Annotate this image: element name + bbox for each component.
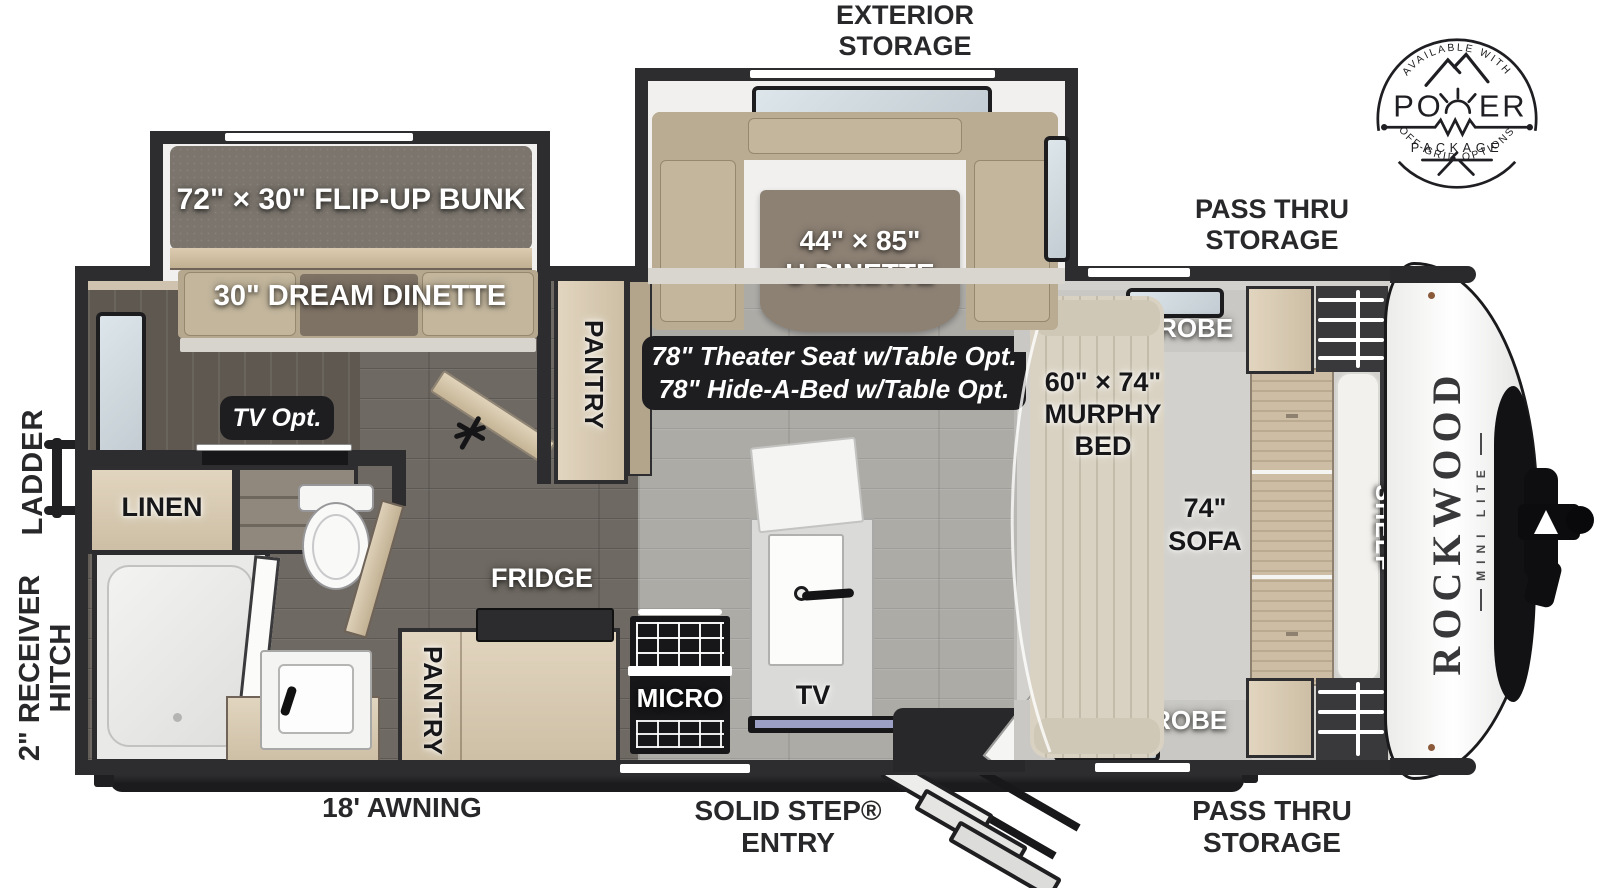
sink-icon	[260, 650, 372, 750]
fridge	[476, 608, 614, 642]
cap-rivet-bottom	[1428, 744, 1435, 751]
label-micro: MICRO	[620, 684, 740, 713]
tv-rear-icon	[202, 450, 348, 465]
wall-left	[75, 266, 88, 775]
label-fridge: FRIDGE	[462, 563, 622, 593]
brand-name: ROCKWOOD	[1423, 368, 1470, 675]
tv-rear-screen	[196, 444, 352, 451]
label-exterior-storage: EXTERIOR STORAGE	[805, 0, 1005, 62]
label-pantry-upper: PANTRY	[578, 280, 608, 470]
bunk-slide-window	[225, 133, 413, 141]
wardrobe-cabinet-top	[1246, 286, 1314, 374]
cap-rivet-top	[1428, 292, 1435, 299]
u-slide-side-window	[1044, 136, 1070, 262]
wall-pantry-left	[537, 278, 551, 484]
cap-trim-bottom	[1390, 758, 1476, 775]
label-pass-thru-storage-top: PASS THRU STORAGE	[1172, 194, 1372, 256]
mountains-icon	[1426, 54, 1488, 85]
floorplan-canvas: EXTERIOR STORAGE PASS THRU STORAGE 18' A…	[0, 0, 1600, 888]
label-sofa: 74" SOFA	[1135, 492, 1275, 558]
u-slide-carpet	[648, 268, 1065, 284]
svg-text:PO: PO	[1393, 88, 1443, 123]
entry-landing-over	[893, 760, 1025, 772]
label-awning: 18' AWNING	[292, 792, 512, 823]
entry-steps-icon	[862, 772, 1082, 888]
shelf-rails-top	[1316, 286, 1388, 372]
label-pass-thru-storage-bottom: PASS THRU STORAGE	[1172, 795, 1372, 859]
cap-trim-top	[1390, 266, 1476, 283]
svg-text:AVAILABLE WITH: AVAILABLE WITH	[1401, 43, 1514, 78]
power-package-badge: AVAILABLE WITH OFF-GRID OPTIONS PO ER PA…	[1366, 18, 1548, 200]
label-tv: TV	[770, 680, 856, 710]
entry-door-leaf	[750, 437, 864, 534]
hitch-icon	[1516, 460, 1600, 610]
label-solid-step-entry: SOLID STEP® ENTRY	[688, 795, 888, 859]
murphy-swing-arc	[990, 290, 1080, 760]
label-receiver-hitch: 2" RECEIVER HITCH	[15, 548, 77, 788]
shelf-rails-bottom	[1316, 678, 1388, 760]
window-strip-bottom-left	[620, 764, 750, 773]
bath-wall-side	[392, 450, 406, 506]
label-dream-dinette: 30" DREAM DINETTE	[188, 280, 532, 312]
tv-opt-label: TV Opt.	[220, 396, 334, 440]
sun-icon	[1441, 89, 1476, 113]
label-flip-up-bunk: 72" × 30" FLIP-UP BUNK	[172, 183, 530, 217]
theater-option-label: 78" Theater Seat w/Table Opt. 78" Hide-A…	[642, 336, 1026, 410]
brand-sub: MINI LITE	[1474, 433, 1488, 611]
rear-window-icon	[96, 312, 146, 458]
svg-text:ER: ER	[1479, 88, 1527, 123]
dinette-carpet	[180, 338, 536, 352]
tv-screen-icon	[748, 716, 900, 733]
bunk-ledge	[170, 248, 532, 270]
label-linen: LINEN	[88, 492, 236, 522]
wardrobe-cabinet-bottom	[1246, 678, 1314, 758]
window-strip-top	[1088, 268, 1190, 277]
window-strip-bottom-right	[1095, 763, 1190, 772]
brand-logo: ROCKWOOD MINI LITE	[1410, 342, 1500, 702]
u-slide-window-strip	[750, 70, 995, 78]
